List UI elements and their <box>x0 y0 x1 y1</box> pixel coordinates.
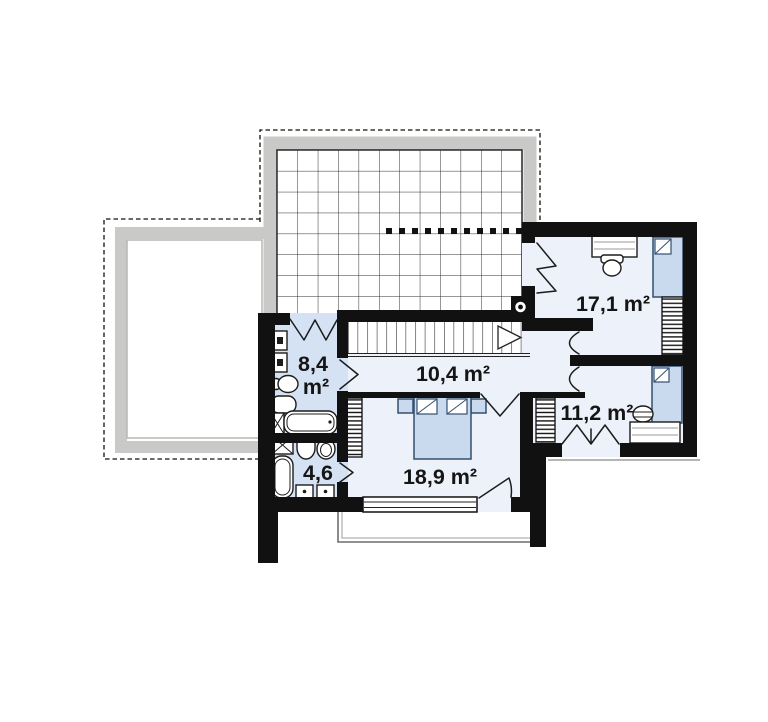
nightstand <box>398 399 413 413</box>
wall-cabinet-core <box>277 337 283 344</box>
floor-plan-drawing: 8,4 m² 10,4 m² 17,1 m² 11,2 m² 4,6 18,9 … <box>0 0 768 722</box>
wall-balcony-side <box>530 455 546 547</box>
window <box>363 497 477 512</box>
wall-south <box>258 497 363 512</box>
wall-cabinet-core <box>277 359 283 366</box>
cistern-dot <box>324 490 328 494</box>
chair-seat <box>603 260 621 276</box>
stool <box>633 406 653 422</box>
wall-bedrooms-divider <box>570 355 697 366</box>
wall-hall-divider <box>348 392 480 398</box>
wall <box>337 391 348 462</box>
room-label-hallway: 10,4 m² <box>416 362 490 386</box>
chimney-flue-core <box>518 305 523 310</box>
bathtub-drain <box>328 420 331 423</box>
wall-stair-top <box>345 310 530 322</box>
floor-plan-page: 8,4 m² 10,4 m² 17,1 m² 11,2 m² 4,6 18,9 … <box>0 0 768 722</box>
wardrobe-hatch <box>662 297 683 355</box>
wall <box>522 318 593 331</box>
room-label-bathroom-lower: 4,6 <box>303 461 333 485</box>
nightstand <box>471 399 486 413</box>
wall <box>511 497 532 512</box>
master-door-niche <box>477 497 512 512</box>
room-label-bedroom-master: 18,9 m² <box>403 465 477 489</box>
room-label-bedroom-top-right: 17,1 m² <box>576 292 650 316</box>
wall-west <box>258 313 275 503</box>
wall-bath-divider <box>258 433 348 443</box>
terrace-door-niche <box>522 241 535 290</box>
roof-inner-panel <box>127 240 262 438</box>
desk <box>630 422 680 443</box>
wall-east <box>683 237 697 457</box>
washbasin <box>278 376 298 393</box>
stair-treads <box>348 322 522 353</box>
balcony-door-niche-right <box>562 443 620 457</box>
staircase <box>348 322 530 357</box>
wall-south-right <box>620 443 697 457</box>
wall <box>522 237 535 243</box>
room-label-bathroom-upper: 8,4 <box>298 352 328 376</box>
room-label-bedroom-bottom-right: 11,2 m² <box>561 401 634 425</box>
wall-south-right <box>530 443 562 457</box>
wall <box>337 318 348 358</box>
room-label-bathroom-upper-unit: m² <box>303 375 329 399</box>
desk <box>592 236 637 257</box>
terrace <box>277 150 523 317</box>
wardrobe-hatch <box>536 398 555 442</box>
wall-hall-divider <box>530 392 585 398</box>
wall-north <box>522 222 697 237</box>
cistern-dot <box>303 490 307 494</box>
